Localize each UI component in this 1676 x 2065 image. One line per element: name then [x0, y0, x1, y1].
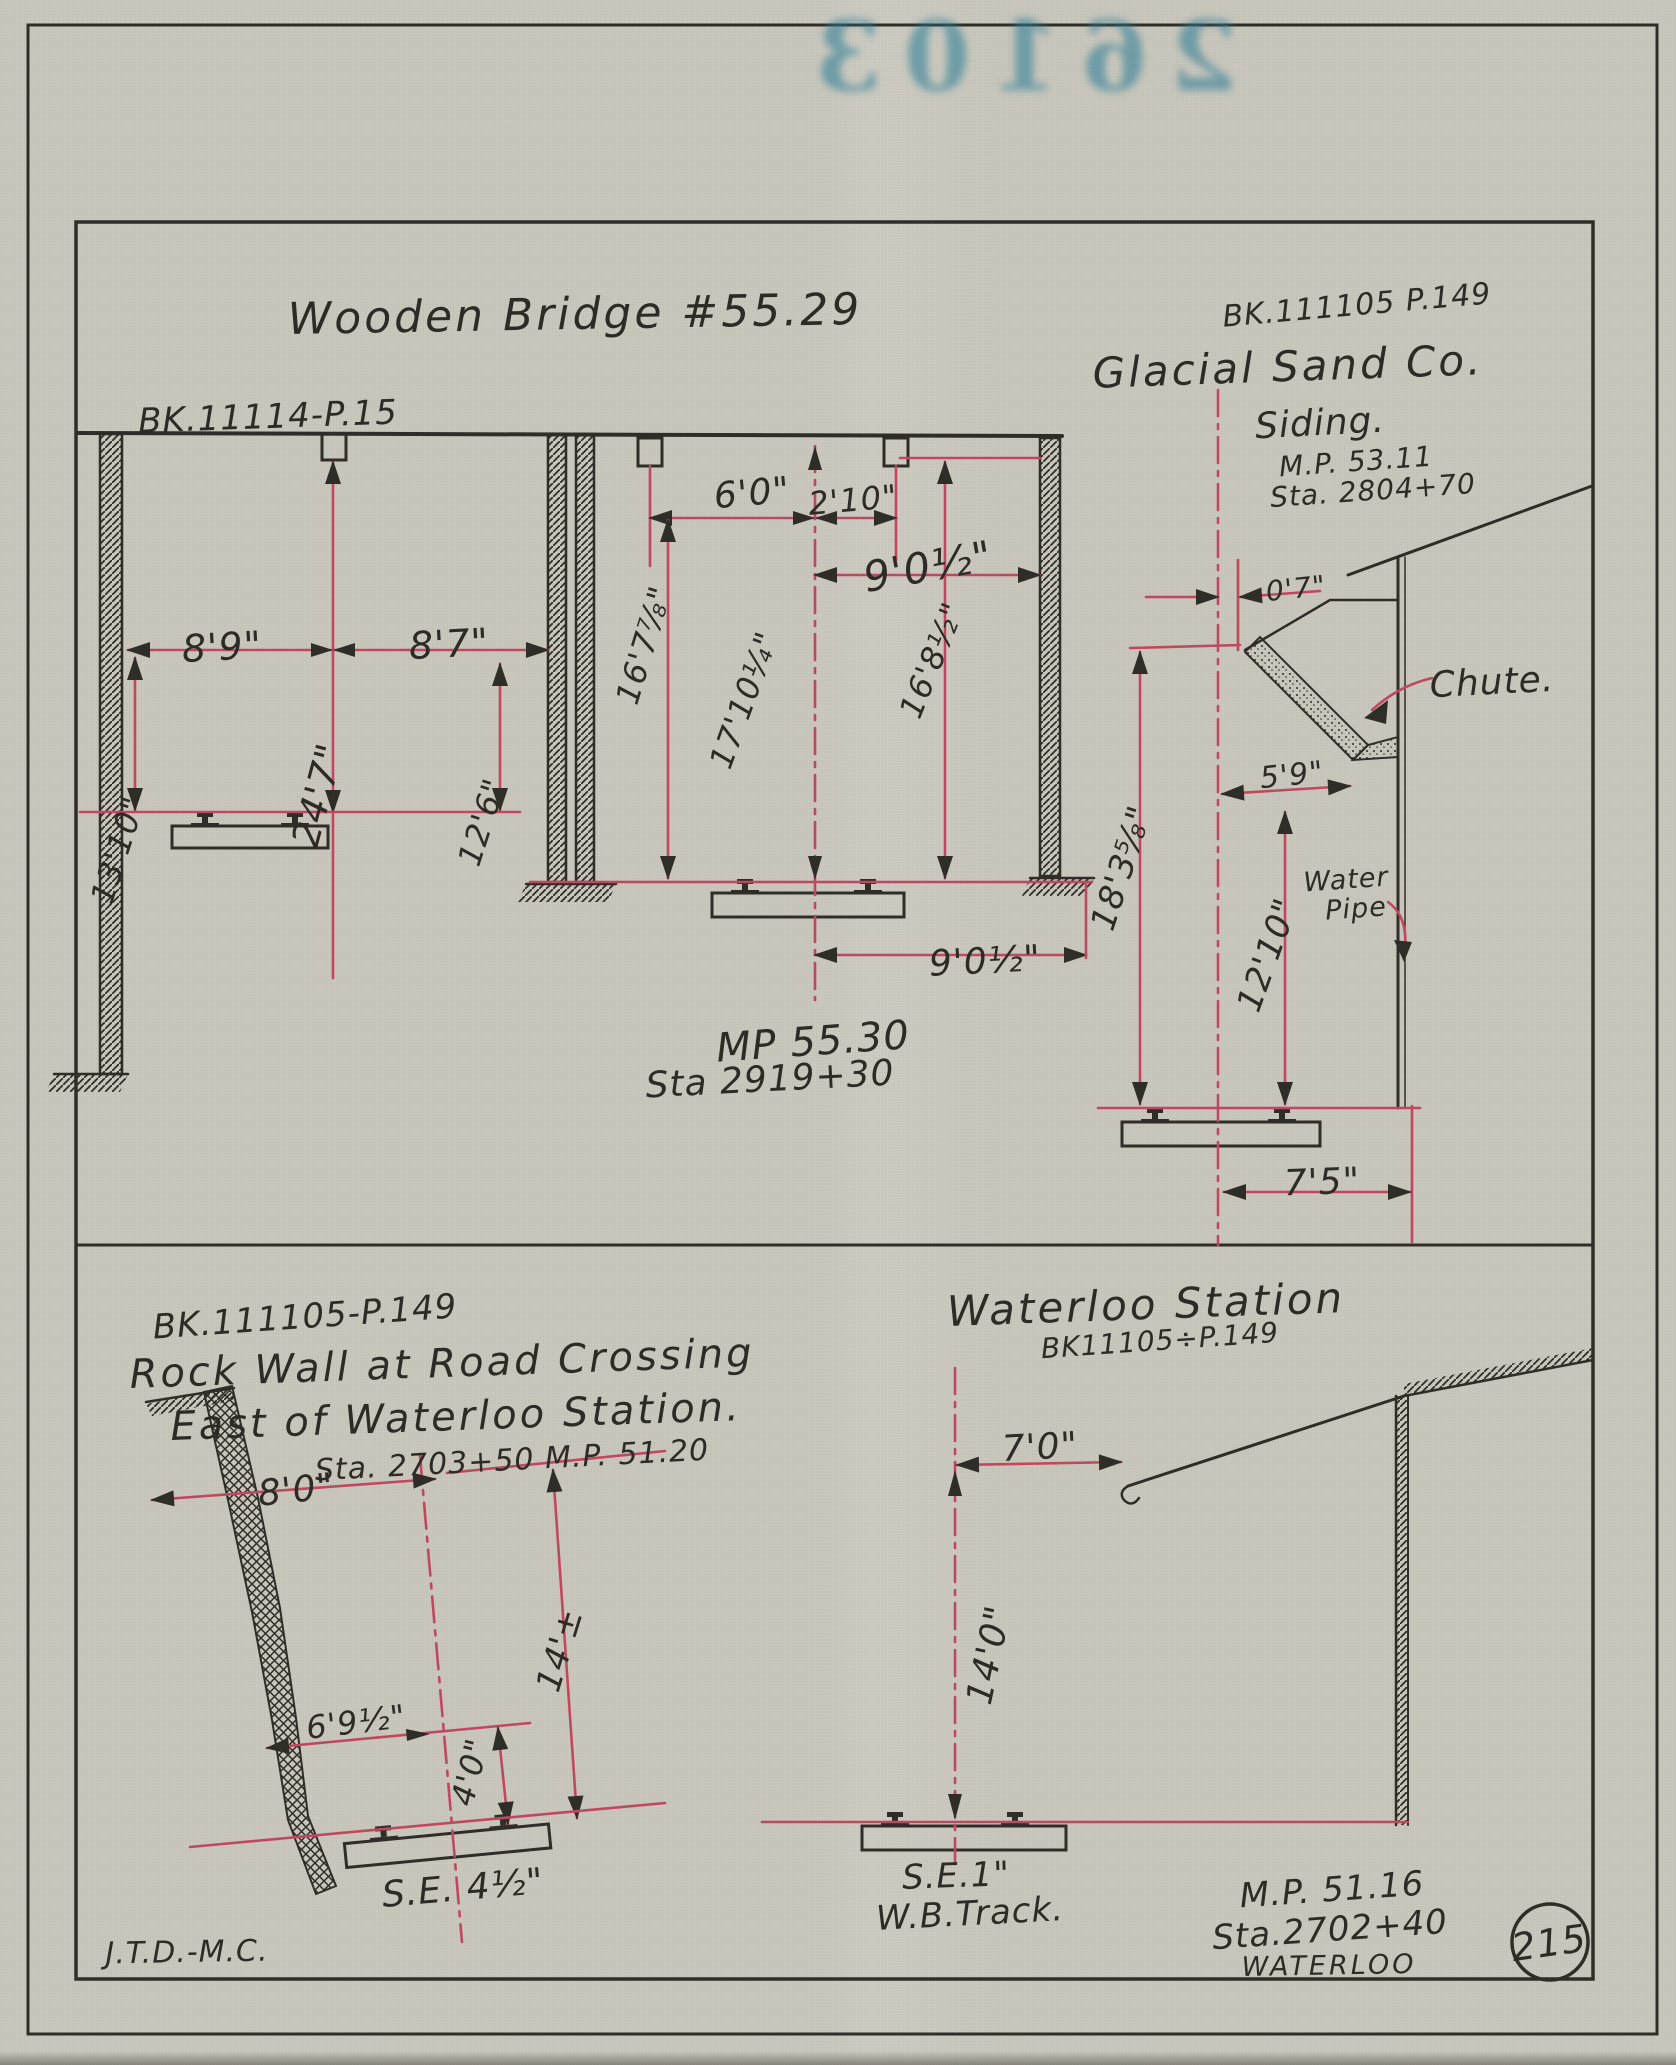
roof-gutter	[1122, 1486, 1139, 1504]
scanned-clearance-diagram-sheet: 26103 Wooden Bridge #55.29 BK.11114-P.15…	[0, 0, 1676, 2065]
dim-eave-offset: 7'0"	[1001, 1428, 1079, 1468]
glacial-structure	[1122, 486, 1592, 1146]
bridge-book-ref: BK.11114-P.15	[138, 395, 399, 438]
dim-gauge-offset: 9'0½"	[928, 941, 1042, 983]
track-tie	[862, 1826, 1066, 1850]
dim-chute-clearance: 5'9"	[1258, 758, 1325, 795]
bridge-structure	[46, 433, 1094, 1092]
chute-pointer-arrow	[1372, 678, 1432, 710]
waterloo-station-name: WATERLOO	[1241, 1951, 1416, 1981]
dim-panel-left: 6'0"	[712, 473, 791, 516]
chute-label: Chute.	[1429, 662, 1555, 704]
water-pipe-label-line2: Pipe	[1324, 893, 1387, 924]
track-tie	[1122, 1122, 1320, 1146]
dim-rock-top-clearance: 8'0"	[256, 1469, 336, 1513]
dim-left-clearance: 8'9"	[181, 626, 263, 668]
rock-wall-dimension-lines	[152, 1451, 665, 1942]
dim-right-clearance: 8'7"	[408, 623, 490, 665]
waterloo-superelevation-line1: S.E.1"	[901, 1857, 1010, 1895]
dim-chute-offset: 0'7"	[1265, 572, 1328, 606]
page-badge-number: 215	[1509, 1919, 1589, 1967]
blue-number-stamp: 26103	[745, 0, 1285, 125]
drafter-initials: J.T.D.-M.C.	[105, 1937, 269, 1970]
station-roof	[1128, 1396, 1404, 1486]
waterloo-superelevation-line2: W.B.Track.	[875, 1892, 1064, 1936]
dim-wall-offset: 7'5"	[1283, 1164, 1360, 1203]
rock-wall-arrowheads	[406, 1729, 430, 1741]
dim-panel-right: 2'10"	[807, 480, 899, 520]
glacial-subtitle: Siding.	[1254, 403, 1386, 446]
track-tie	[712, 893, 904, 917]
bridge-title: Wooden Bridge #55.29	[287, 288, 862, 342]
chute-band	[1245, 637, 1368, 760]
station-dimension-lines	[762, 1368, 1408, 1872]
